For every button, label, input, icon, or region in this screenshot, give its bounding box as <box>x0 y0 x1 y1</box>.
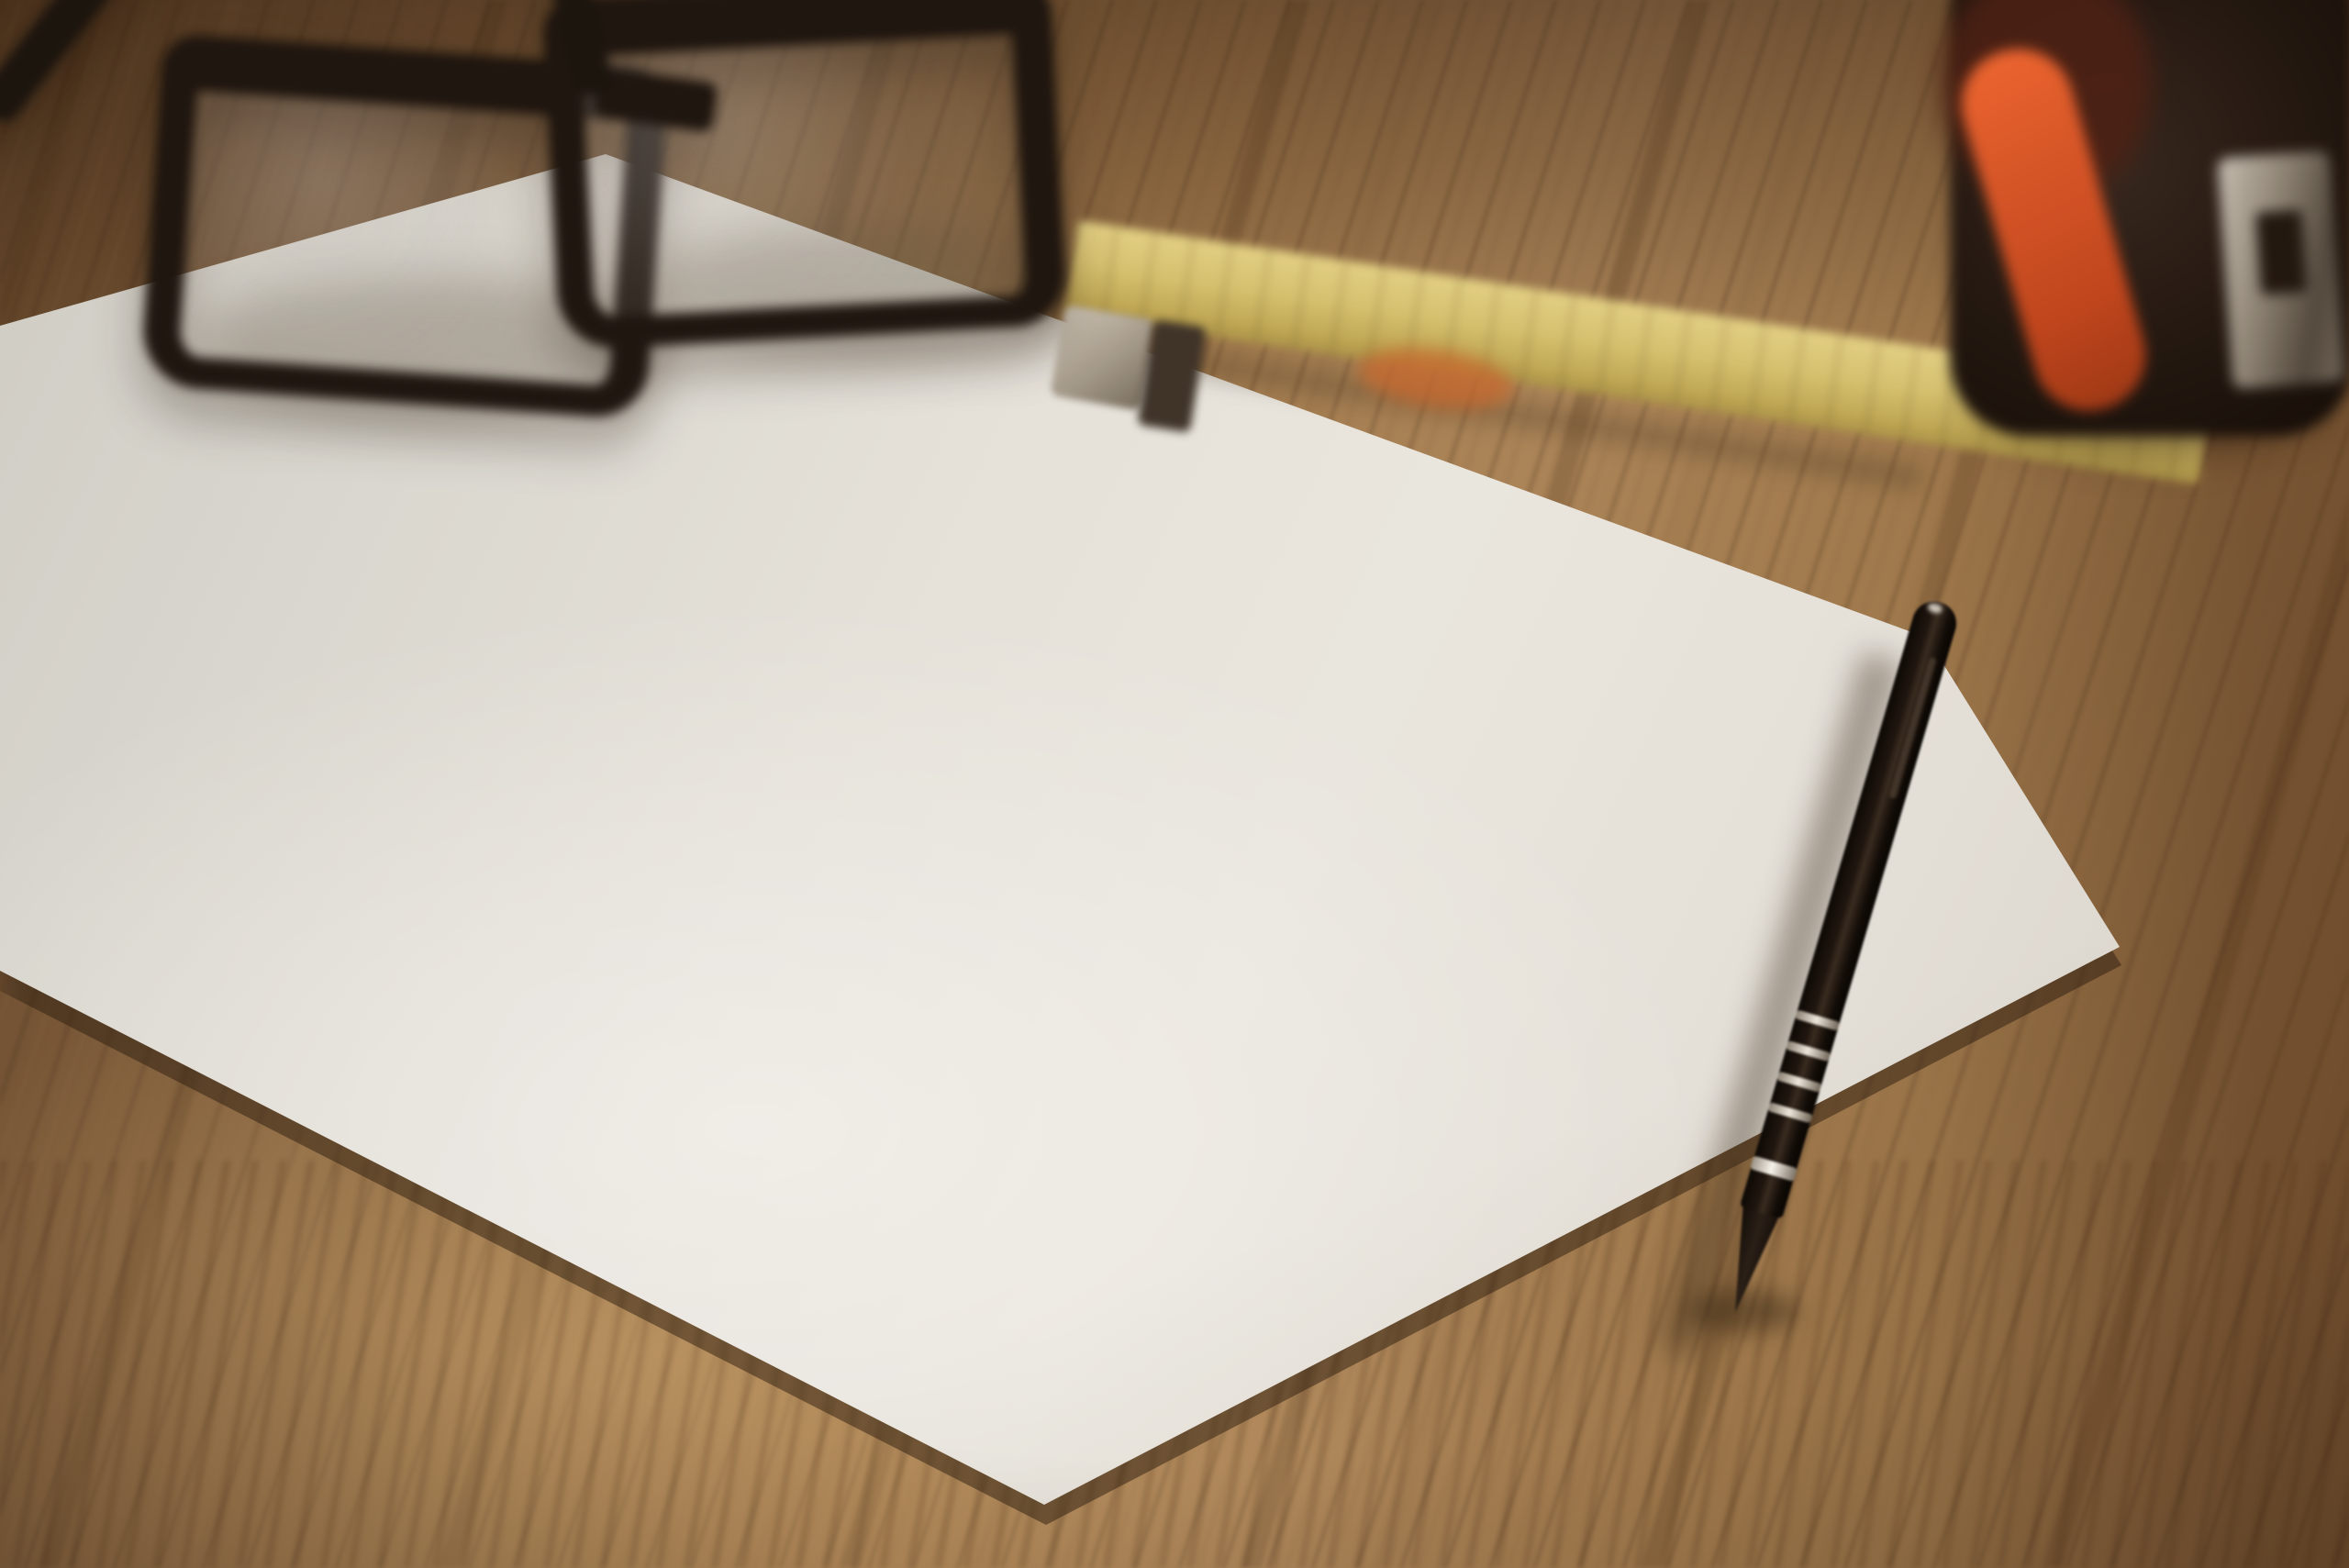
photo-scene: BED ROOM 13'x 12'6" DINING 11'6"x12'6" B… <box>0 0 2349 1568</box>
tape-measure-clip-notch <box>2255 209 2307 295</box>
tape-measure-body <box>1950 0 2349 436</box>
glasses-left-temple <box>0 0 175 128</box>
eyeglasses <box>0 0 1147 477</box>
glasses-right-lens <box>541 0 1067 350</box>
